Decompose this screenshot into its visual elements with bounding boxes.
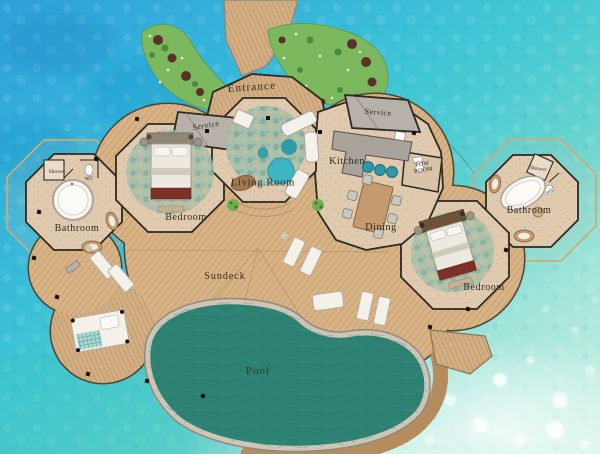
side-table-icon <box>140 138 148 146</box>
villa-floor-plan: Entrance Service Service Living Room Kit… <box>0 0 600 454</box>
teal-ottoman-icon <box>258 148 269 159</box>
teal-rug-icon <box>268 158 294 184</box>
sink-icon <box>394 131 405 140</box>
bathtub-icon <box>53 180 93 220</box>
floor-plan-canvas <box>0 0 600 454</box>
bar-stool-icon <box>375 165 386 176</box>
service-right-room <box>345 95 420 132</box>
teal-ottoman-icon <box>281 139 297 155</box>
plant-icon <box>312 199 324 211</box>
bar-stool-icon <box>363 162 374 173</box>
bar-stool-icon <box>387 167 398 178</box>
toilet-icon <box>85 165 93 176</box>
side-table-icon <box>194 138 202 146</box>
sink-icon <box>514 230 534 242</box>
stool-icon <box>533 207 543 217</box>
shower-icon <box>44 160 64 180</box>
sofa-icon <box>304 132 319 163</box>
plant-icon <box>227 199 239 211</box>
bedroom-left-furniture <box>126 130 214 214</box>
